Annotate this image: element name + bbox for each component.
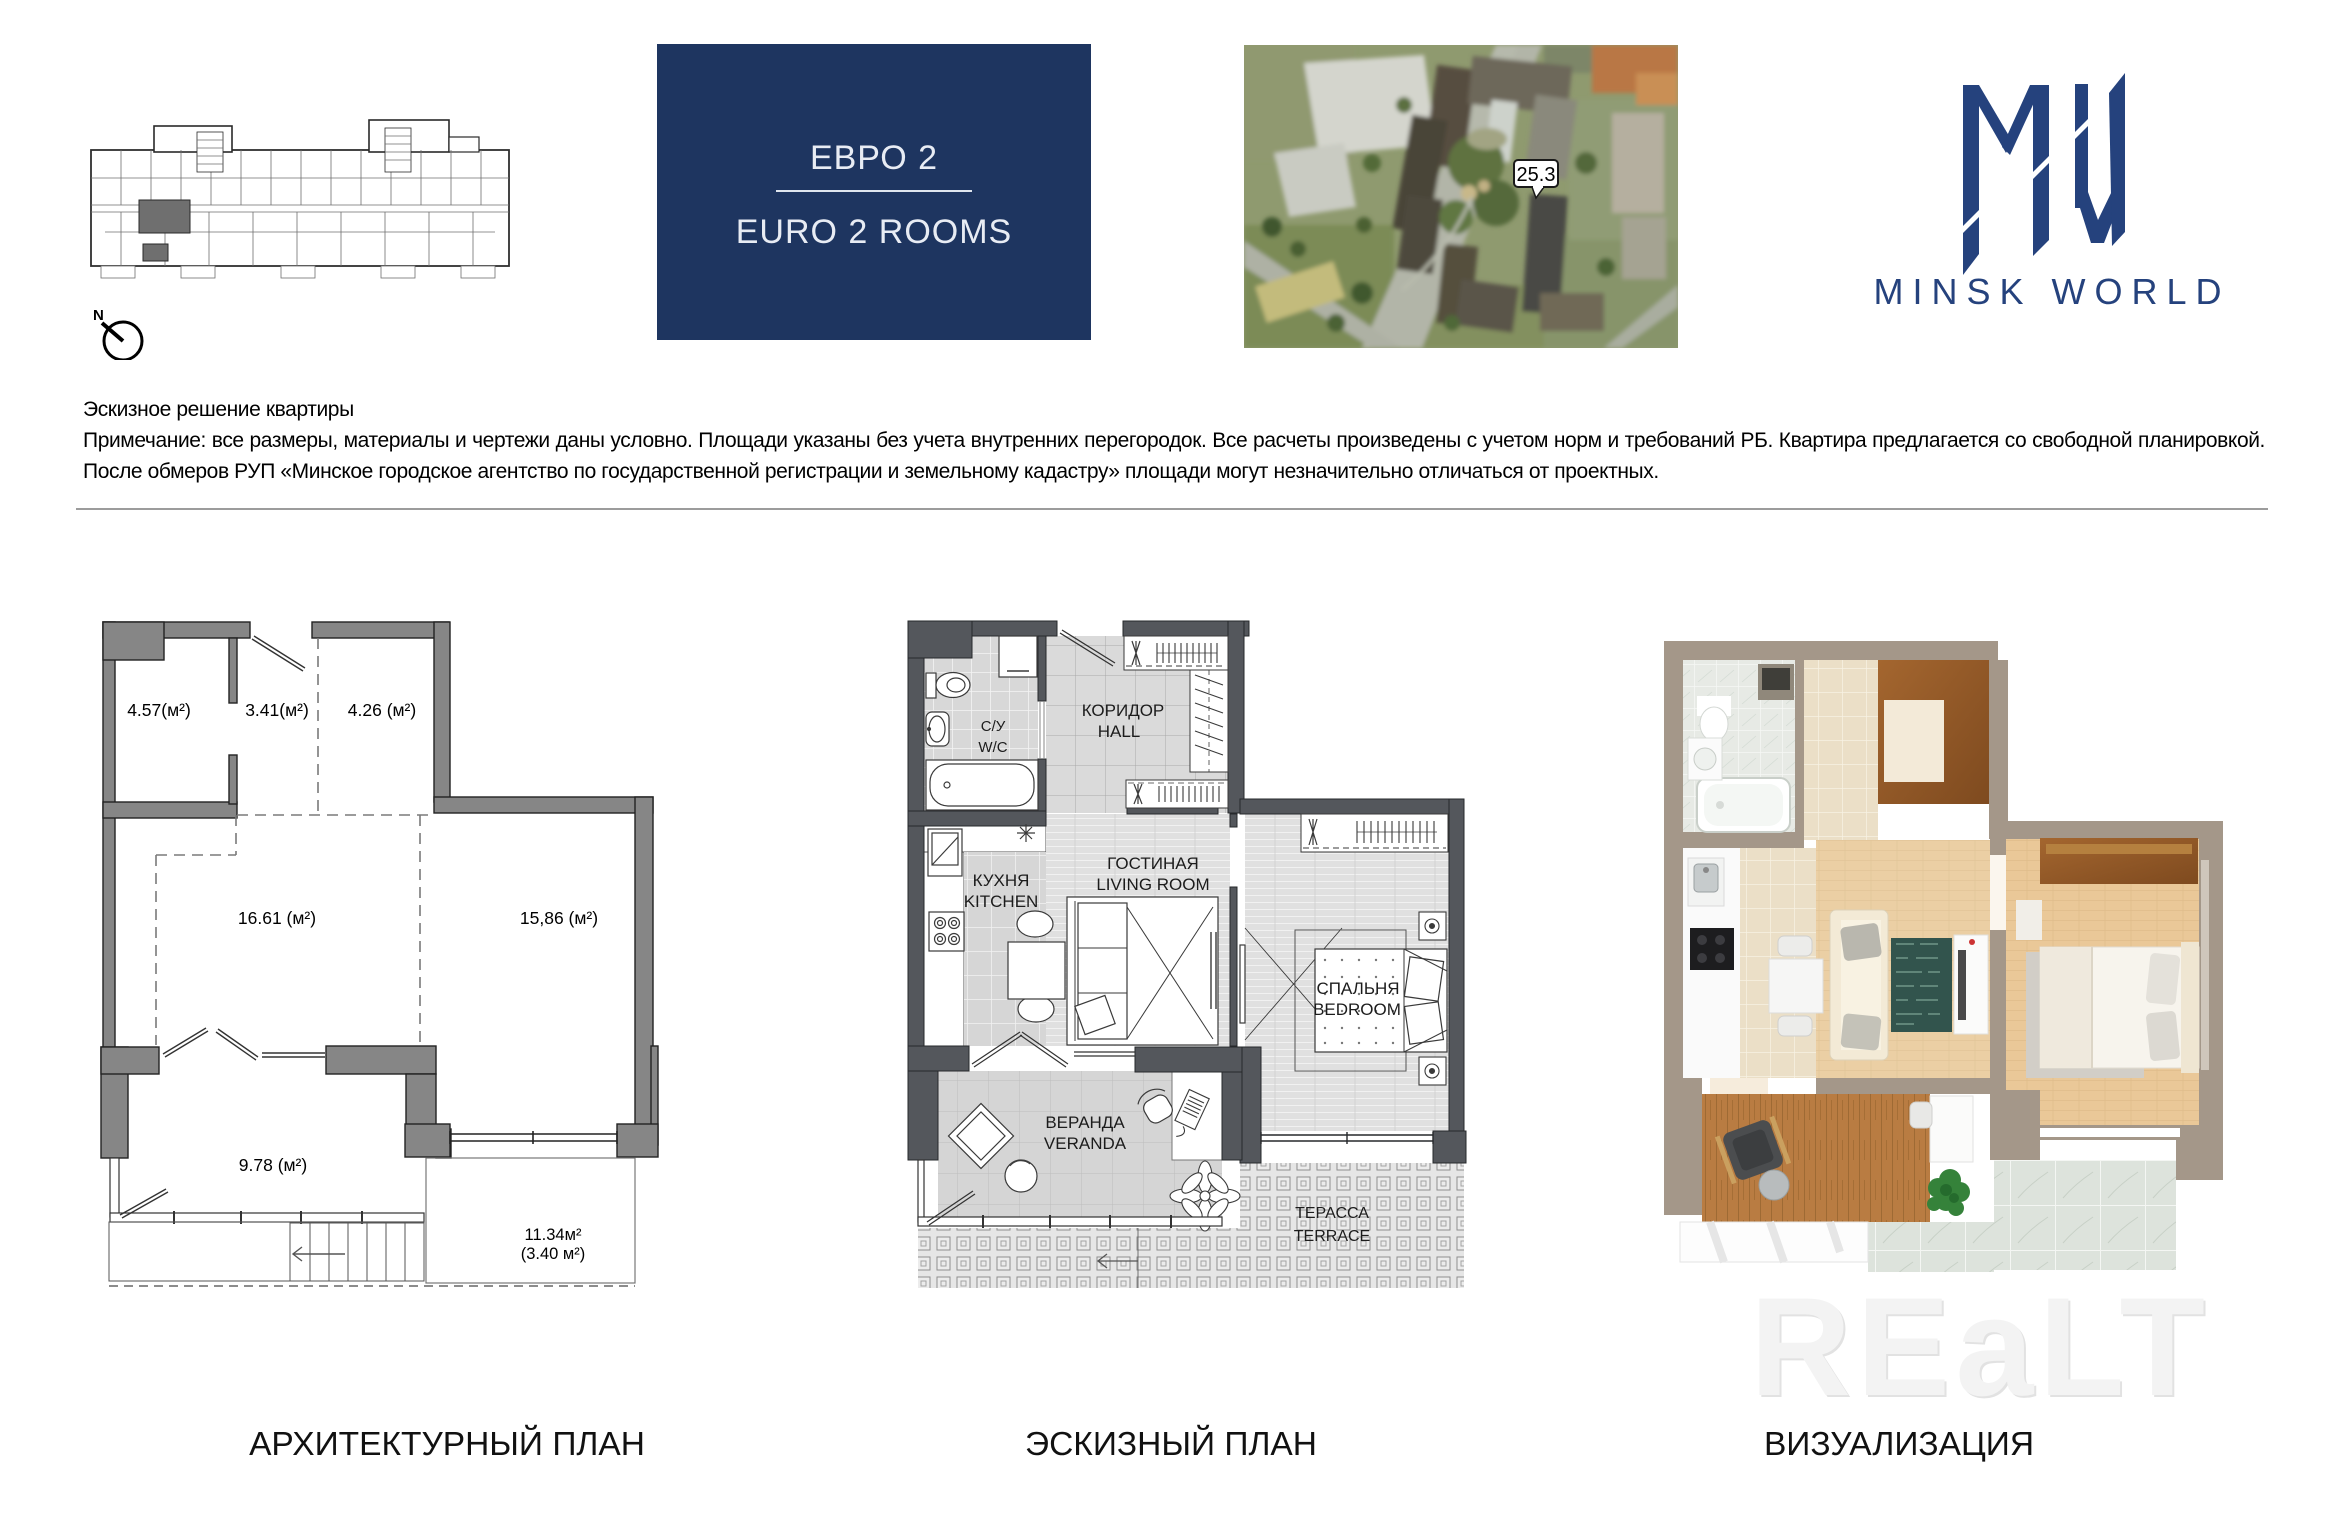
svg-text:KITCHEN: KITCHEN <box>964 892 1039 911</box>
svg-text:КОРИДОР: КОРИДОР <box>1082 701 1165 720</box>
svg-text:15,86 (м²): 15,86 (м²) <box>520 908 598 928</box>
svg-text:BEDROOM: BEDROOM <box>1313 1000 1401 1019</box>
svg-text:4.57(м²): 4.57(м²) <box>127 700 191 720</box>
svg-text:MINSK WORLD: MINSK WORLD <box>1873 271 2230 312</box>
svg-text:С/У: С/У <box>981 718 1006 735</box>
svg-text:3.41(м²): 3.41(м²) <box>245 700 309 720</box>
svg-text:W/C: W/C <box>978 739 1007 756</box>
svg-text:LIVING ROOM: LIVING ROOM <box>1096 875 1209 894</box>
svg-text:TERRACE: TERRACE <box>1294 1228 1370 1245</box>
svg-text:СПАЛЬНЯ: СПАЛЬНЯ <box>1316 979 1399 998</box>
svg-text:ВЕРАНДА: ВЕРАНДА <box>1045 1113 1125 1132</box>
svg-text:HALL: HALL <box>1098 722 1141 741</box>
svg-text:ТЕРАССА: ТЕРАССА <box>1295 1205 1369 1222</box>
svg-text:9.78 (м²): 9.78 (м²) <box>239 1155 307 1175</box>
svg-text:VERANDA: VERANDA <box>1044 1134 1127 1153</box>
svg-text:КУХНЯ: КУХНЯ <box>973 871 1030 890</box>
svg-text:11.34м²: 11.34м² <box>525 1226 582 1244</box>
svg-text:ГОСТИНАЯ: ГОСТИНАЯ <box>1107 854 1199 873</box>
svg-text:25.3: 25.3 <box>1517 164 1556 186</box>
svg-text:16.61 (м²): 16.61 (м²) <box>238 908 316 928</box>
svg-text:(3.40 м²): (3.40 м²) <box>521 1245 586 1263</box>
svg-text:4.26 (м²): 4.26 (м²) <box>348 700 416 720</box>
svg-text:N: N <box>93 307 104 324</box>
